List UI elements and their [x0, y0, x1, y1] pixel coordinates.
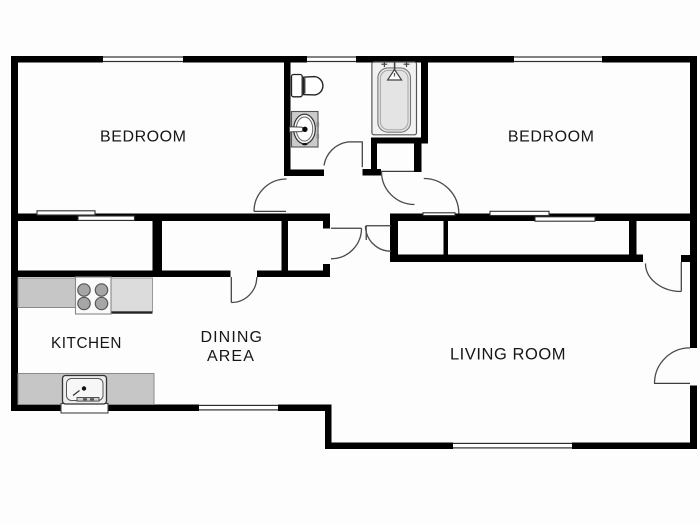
svg-text:BEDROOM: BEDROOM: [100, 129, 187, 146]
svg-text:DINING: DINING: [200, 329, 263, 346]
svg-text:LIVING ROOM: LIVING ROOM: [450, 346, 566, 364]
svg-text:AREA: AREA: [207, 348, 255, 365]
svg-text:KITCHEN: KITCHEN: [51, 335, 122, 352]
svg-text:BEDROOM: BEDROOM: [508, 129, 595, 146]
